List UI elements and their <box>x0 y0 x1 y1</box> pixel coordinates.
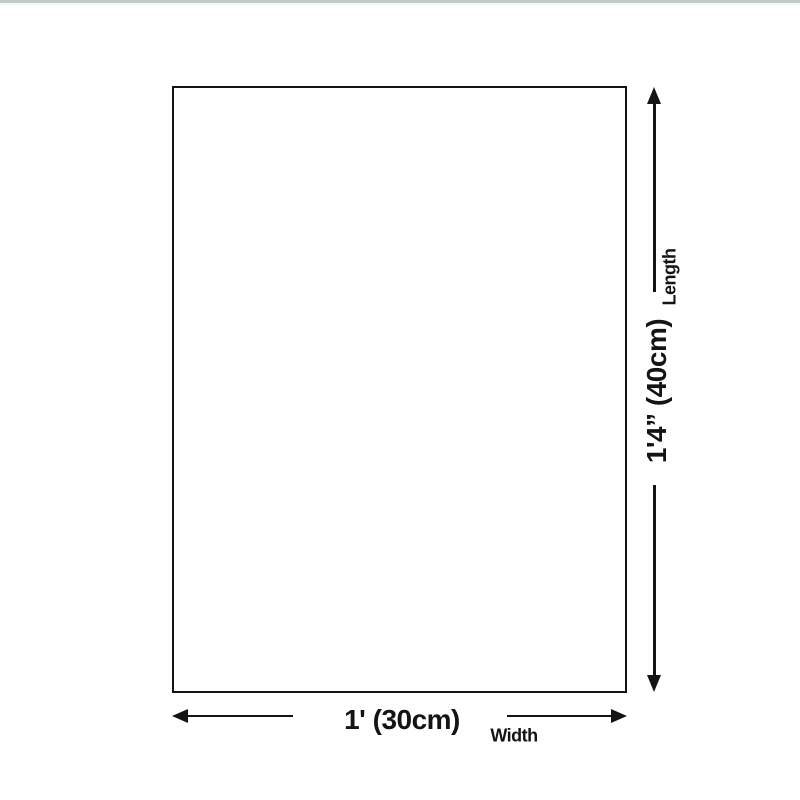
width-dimension-line-left <box>188 715 293 718</box>
product-outline <box>172 86 627 693</box>
arrow-down-icon <box>647 675 661 692</box>
page-top-border-fade <box>0 3 800 7</box>
length-value: 1'4” (40cm) <box>641 319 673 463</box>
width-axis-label: Width <box>490 726 537 747</box>
arrow-right-icon <box>611 709 627 723</box>
width-dimension-line-right <box>507 715 612 718</box>
length-dimension-line-bottom <box>653 485 656 675</box>
length-axis-label: Length <box>660 249 681 306</box>
arrow-left-icon <box>172 709 188 723</box>
length-dimension-line-top <box>653 103 656 292</box>
width-value: 1' (30cm) <box>344 704 460 736</box>
arrow-up-icon <box>647 87 661 104</box>
product-size-diagram: Length 1'4” (40cm) 1' (30cm) Width <box>0 0 800 800</box>
